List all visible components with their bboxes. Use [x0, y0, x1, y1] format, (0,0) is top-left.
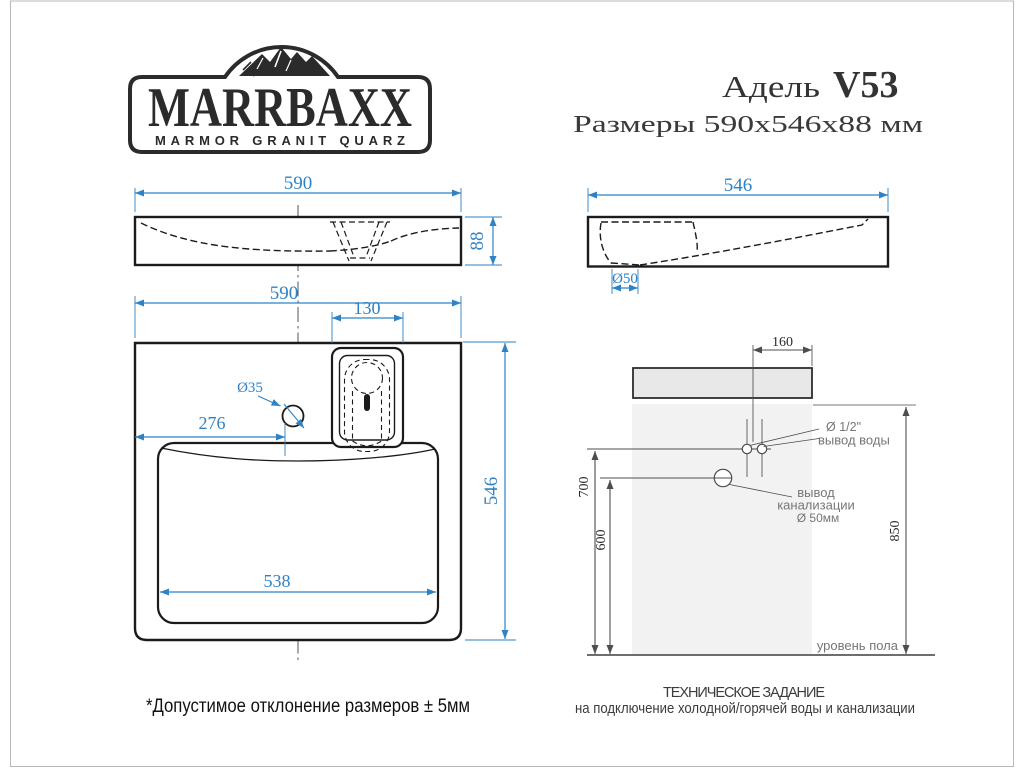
model-name: Адель	[722, 69, 820, 104]
side-depth-label: 546	[724, 175, 753, 196]
top-depth-label: 546	[481, 477, 502, 506]
front-view: 590 88	[135, 173, 502, 265]
water-height-label: 700	[577, 477, 592, 498]
top-width-label: 590	[270, 283, 299, 304]
model-code: V53	[833, 64, 898, 106]
brand-name: MARRBAXX	[148, 77, 412, 139]
spec-title: ТЕХНИЧЕСКОЕ ЗАДАНИЕ	[663, 685, 825, 701]
drawing-page: MARRBAXX MARMOR GRANIT QUARZ Адель V53 Р…	[0, 0, 1024, 768]
tap-area-width-label: 130	[354, 298, 381, 318]
hole-offset-label: 276	[199, 413, 226, 433]
spec-subtitle: на подключение холодной/горячей воды и к…	[575, 701, 915, 717]
side-body	[588, 217, 888, 267]
front-body	[135, 217, 461, 265]
water-outlet-label: вывод воды	[818, 433, 890, 448]
tap-slot	[364, 394, 370, 411]
size-line: Размеры 590х546х88 мм	[573, 112, 923, 138]
notes: *Допустимое отклонение размеров ± 5мм ТЕ…	[146, 685, 915, 717]
water-outlet-right	[757, 444, 766, 453]
installation-diagram: 160 700 600 850 Ø 1/2" вывод воды вывод …	[577, 335, 935, 655]
drain-height-label: 600	[594, 530, 609, 551]
worktop-height-label: 850	[888, 521, 903, 542]
hole-diameter-label: Ø35	[237, 380, 263, 396]
front-width-label: 590	[284, 173, 313, 194]
tap-offset-label: 160	[772, 335, 793, 350]
technical-drawing: MARRBAXX MARMOR GRANIT QUARZ Адель V53 Р…	[0, 0, 1024, 768]
front-height-label: 88	[467, 232, 488, 251]
side-drain-label: Ø50	[612, 271, 638, 287]
top-view: 590 130 276 Ø35 538 546	[135, 283, 516, 640]
tap-platform	[332, 348, 403, 452]
bowl-width-label: 538	[264, 571, 291, 591]
wall-area	[632, 404, 812, 655]
top-body	[135, 343, 461, 640]
side-view: 546 Ø50	[588, 175, 888, 294]
brand-logo: MARRBAXX MARMOR GRANIT QUARZ	[92, 47, 430, 152]
tolerance-note: *Допустимое отклонение размеров ± 5мм	[146, 696, 470, 717]
drain-size-label: Ø 50мм	[797, 511, 840, 525]
header-title: Адель V53 Размеры 590х546х88 мм	[573, 64, 923, 138]
floor-level-label: уровень пола	[817, 638, 899, 653]
worktop-slab	[633, 368, 812, 398]
